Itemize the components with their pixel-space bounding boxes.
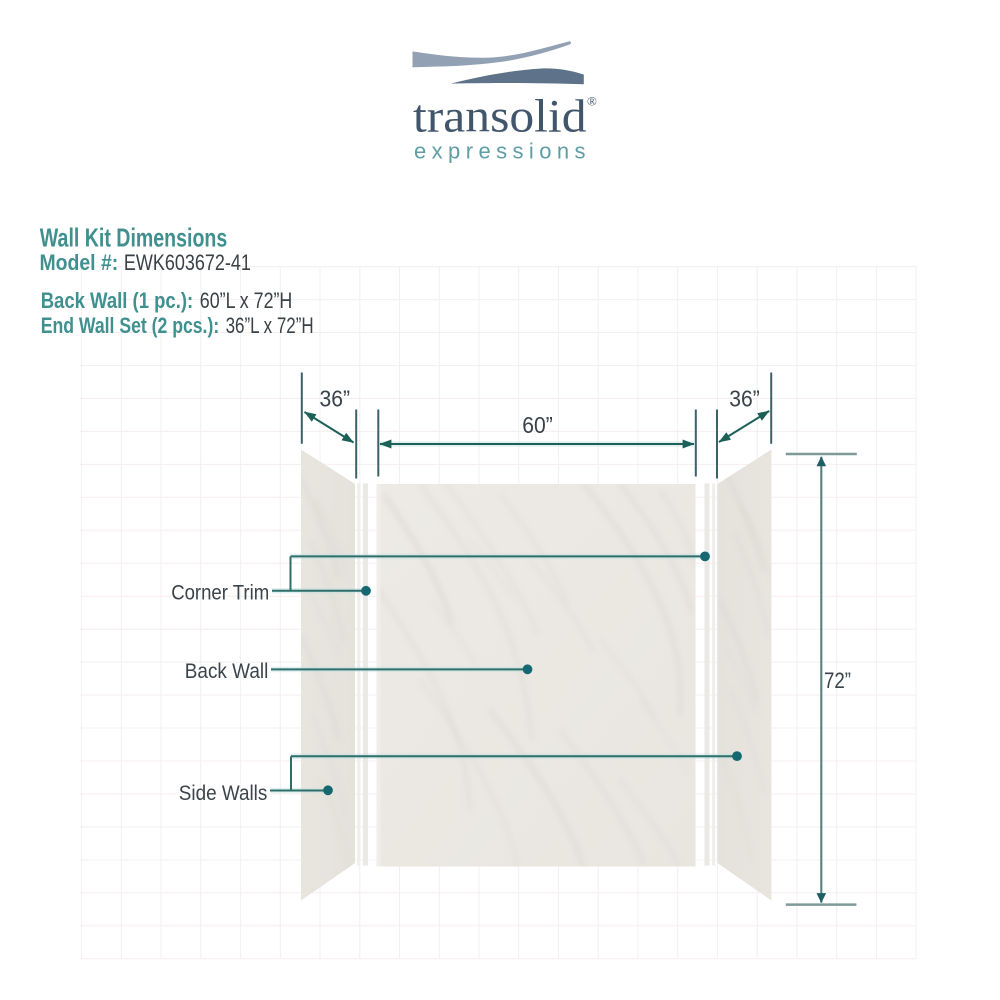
svg-text:36”: 36” [729, 385, 760, 411]
svg-text:EWK603672-41: EWK603672-41 [124, 250, 251, 275]
svg-text:36”: 36” [320, 385, 351, 411]
svg-text:Side Walls: Side Walls [179, 781, 268, 805]
svg-text:End Wall Set (2 pcs.):: End Wall Set (2 pcs.): [41, 313, 220, 338]
svg-text:Corner Trim: Corner Trim [171, 580, 269, 604]
svg-text:Wall Kit Dimensions: Wall Kit Dimensions [40, 222, 228, 252]
svg-text:72”: 72” [824, 668, 851, 693]
svg-text:®: ® [587, 94, 597, 109]
svg-text:Back Wall: Back Wall [185, 659, 269, 683]
svg-text:60”L x 72”H: 60”L x 72”H [200, 288, 292, 313]
svg-text:Model #:: Model #: [40, 250, 119, 275]
svg-text:Back Wall (1 pc.):: Back Wall (1 pc.): [41, 288, 194, 313]
svg-text:transolid: transolid [413, 90, 587, 142]
svg-text:expressions: expressions [414, 138, 586, 163]
svg-text:60”: 60” [522, 412, 553, 438]
svg-text:36”L x 72”H: 36”L x 72”H [226, 313, 314, 338]
